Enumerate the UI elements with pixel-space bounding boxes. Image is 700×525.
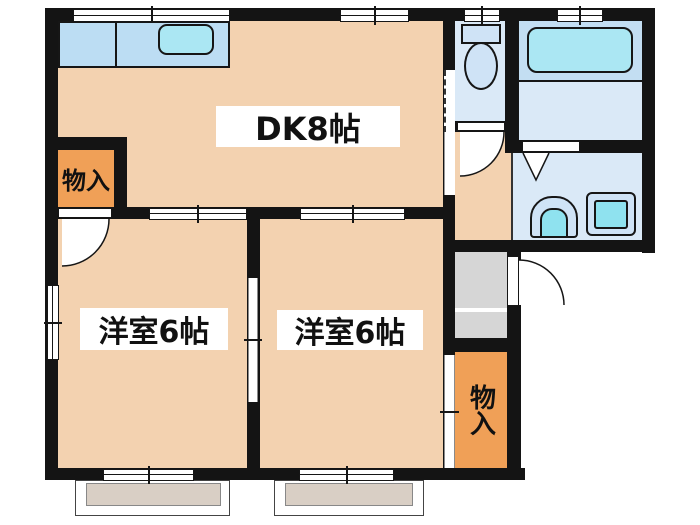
- floor-plan: 物入 物入: [0, 0, 700, 525]
- closet-top-label: 物入: [58, 150, 114, 207]
- room1-label: 洋室6帖: [80, 308, 228, 350]
- washbasin-bowl: [540, 208, 568, 238]
- toilet-door-leaf: [457, 122, 505, 131]
- bathroom-washplace: [519, 82, 642, 140]
- balcony-room2-floor: [285, 483, 413, 506]
- wall-washroom-bottom: [443, 240, 655, 252]
- closet-top-door-leaf: [58, 208, 112, 218]
- wall-entrance-closet: [443, 338, 521, 352]
- sliding-door-dk-room1: [149, 208, 247, 220]
- entrance-hall: [455, 252, 507, 308]
- closet-top: 物入: [58, 150, 114, 207]
- sliding-door-dk-corridor: [444, 70, 455, 195]
- window-dk: [340, 9, 409, 22]
- window-room1-left: [47, 285, 59, 360]
- window-toilet: [464, 9, 500, 22]
- entrance-genkan: [455, 312, 507, 338]
- balcony-room1-floor: [86, 483, 221, 506]
- door-panel: [444, 132, 455, 195]
- washing-machine-drum: [594, 200, 628, 229]
- counter-divider-line: [115, 23, 117, 66]
- toilet-tank: [461, 24, 501, 44]
- entrance-door-arc: [519, 260, 564, 305]
- corridor-floor: [455, 132, 512, 240]
- window-room2-balcony: [299, 469, 394, 481]
- entrance-door-leaf: [507, 256, 519, 306]
- toilet-bowl: [464, 42, 498, 90]
- bath-door-opening: [522, 141, 580, 152]
- sliding-door-dk-room2: [300, 208, 405, 220]
- closet-bottom-label: 物入: [463, 384, 500, 436]
- wall-left: [45, 8, 58, 480]
- washroom-boundary-line: [511, 153, 513, 240]
- bathtub: [527, 27, 633, 73]
- closet-bottom: 物入: [455, 352, 507, 468]
- kitchen-sink: [158, 24, 214, 55]
- wall-right-upper: [642, 8, 655, 253]
- entrance-door-swing: [519, 260, 564, 305]
- door-pocket-dashes: [444, 70, 455, 132]
- wall-closet-top-east: [114, 137, 127, 219]
- window-room1-balcony: [103, 469, 194, 481]
- sliding-door-room1-room2: [248, 278, 258, 402]
- window-bath: [557, 9, 603, 22]
- dk-label: DK8帖: [216, 106, 400, 147]
- sliding-door-closet-bottom: [444, 355, 455, 468]
- room2-label: 洋室6帖: [277, 310, 423, 350]
